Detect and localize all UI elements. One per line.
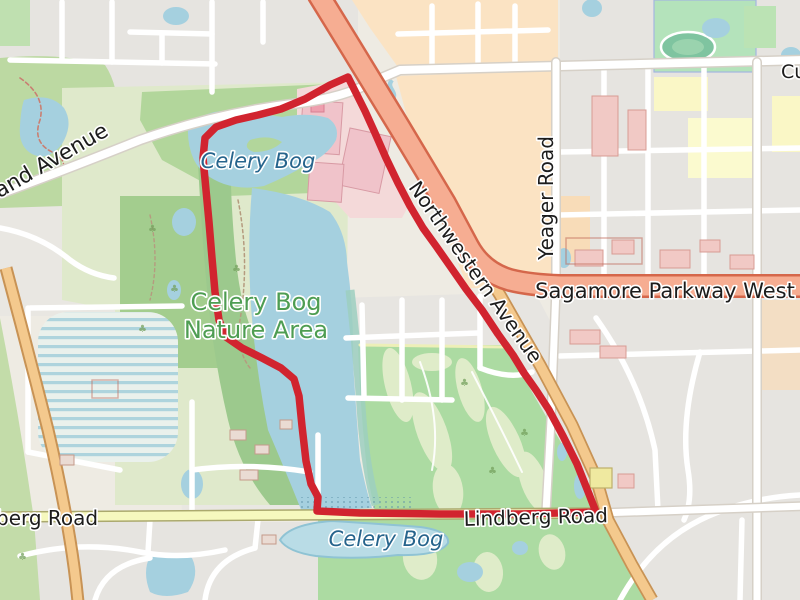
svg-text:♣: ♣ bbox=[138, 324, 147, 335]
label-sagamore-parkway-west: Sagamore Parkway West bbox=[535, 279, 795, 303]
svg-text:♣: ♣ bbox=[488, 466, 497, 477]
svg-text:♣: ♣ bbox=[520, 428, 529, 439]
svg-text:♣: ♣ bbox=[170, 284, 179, 295]
map-canvas[interactable]: ♣♣♣ ♣♣♣ ♣♣♣ land Avenue Cum Celery Bog C… bbox=[0, 0, 800, 600]
label-nature-area-line2: Nature Area bbox=[184, 316, 328, 344]
label-lindberg-road: Lindberg Road bbox=[463, 503, 608, 531]
label-lindberg-road-left: berg Road bbox=[0, 506, 98, 530]
label-celery-bog-top: Celery Bog bbox=[201, 149, 316, 173]
label-yeager-road: Yeager Road bbox=[534, 136, 558, 261]
label-nature-area-line1: Celery Bog bbox=[190, 288, 321, 316]
svg-text:♣: ♣ bbox=[232, 264, 241, 275]
svg-text:♣: ♣ bbox=[148, 224, 157, 235]
svg-text:♣: ♣ bbox=[460, 378, 469, 389]
svg-text:♣: ♣ bbox=[18, 552, 27, 563]
map-viewport[interactable]: ♣♣♣ ♣♣♣ ♣♣♣ land Avenue Cum Celery Bog C… bbox=[0, 0, 800, 600]
label-celery-bog-bottom: Celery Bog bbox=[329, 527, 444, 551]
label-cumberland-right: Cum bbox=[781, 61, 800, 83]
